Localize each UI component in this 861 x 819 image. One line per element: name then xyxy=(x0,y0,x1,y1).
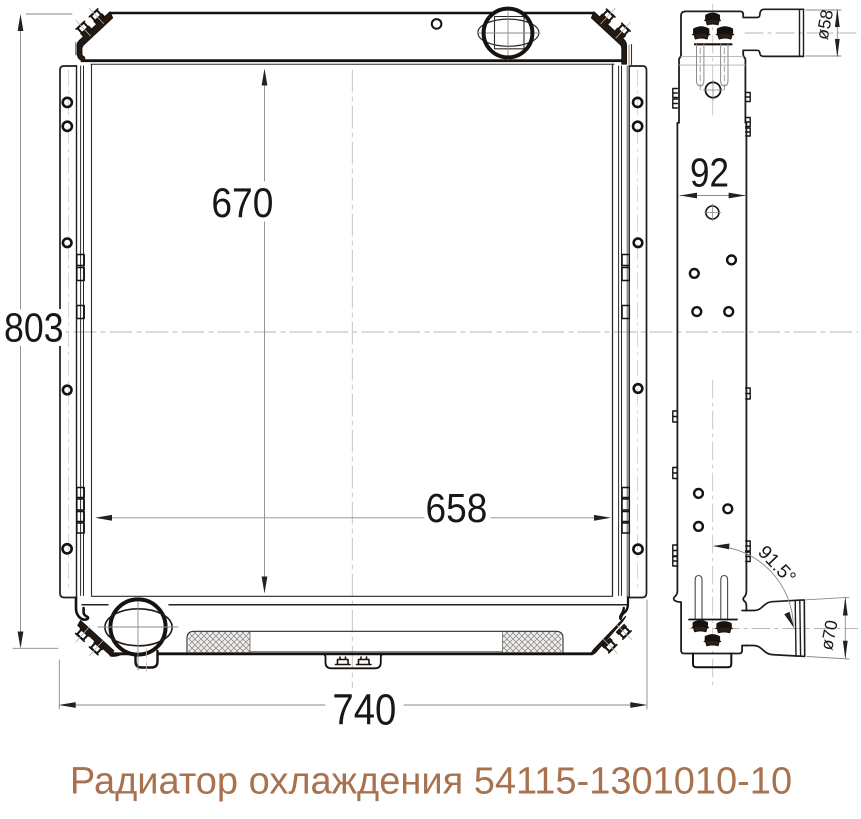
svg-text:740: 740 xyxy=(332,686,396,735)
svg-text:ø70: ø70 xyxy=(816,618,841,652)
svg-text:803: 803 xyxy=(4,304,64,350)
svg-text:658: 658 xyxy=(426,485,488,531)
svg-text:91.5°: 91.5° xyxy=(753,542,799,589)
svg-text:ø58: ø58 xyxy=(812,8,837,41)
svg-text:92: 92 xyxy=(690,150,729,196)
svg-text:670: 670 xyxy=(211,179,273,226)
svg-text:Радиатор охлаждения 54115-1301: Радиатор охлаждения 54115-1301010-10 xyxy=(70,761,792,803)
